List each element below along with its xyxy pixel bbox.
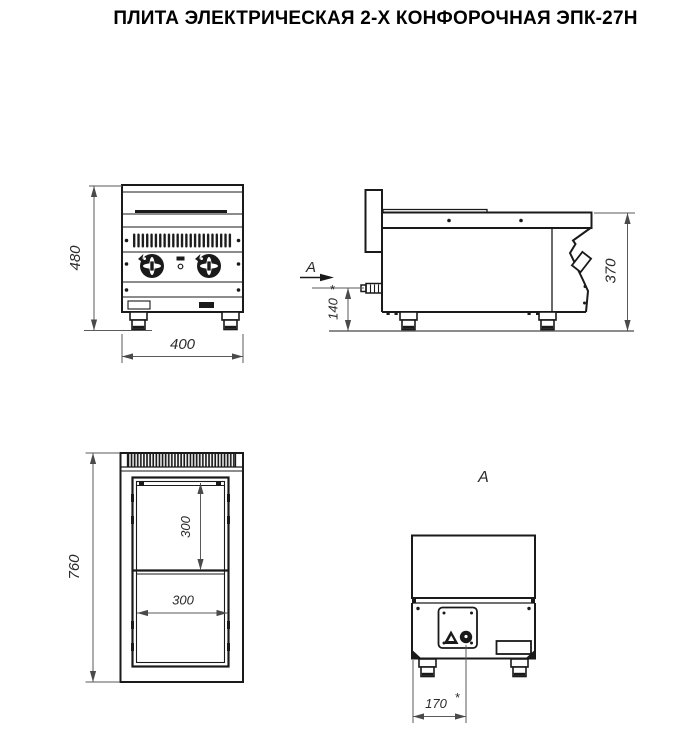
cord-offset-note: * [454, 690, 460, 705]
front-foot-right [222, 312, 239, 330]
hob-opening-inner [137, 482, 225, 663]
front-height-dim: 480 [67, 245, 84, 271]
hob-opening-outer [133, 478, 229, 667]
rear-view-title: А [477, 469, 489, 486]
cord-height-note: * [329, 282, 335, 297]
burner-width-dim: 300 [172, 593, 194, 608]
side-dimensions: А 140 * 370 [300, 213, 635, 331]
plan-view [121, 453, 244, 682]
front-body [122, 185, 243, 312]
base-vent-slot [128, 301, 150, 309]
side-view [329, 190, 634, 331]
cable-gland [361, 284, 382, 294]
technical-drawing: 480 400 [0, 0, 681, 736]
plan-grille [128, 454, 236, 467]
base-label [199, 302, 214, 308]
ventilation-grille [132, 233, 232, 248]
burner-depth-dim: 300 [178, 515, 193, 537]
front-foot-left [130, 312, 147, 330]
plan-dimensions: 760 300 300 [66, 453, 228, 682]
rear-foot-left [419, 659, 436, 677]
side-foot-right [539, 312, 556, 330]
burner-knob-right [195, 254, 221, 278]
rear-lower-panel [412, 603, 535, 659]
rear-upper-panel [412, 536, 535, 599]
worktop [382, 213, 592, 229]
front-width-dim: 400 [170, 336, 196, 353]
drawing-page: ПЛИТА ЭЛЕКТРИЧЕСКАЯ 2-Х КОНФОРОЧНАЯ ЭПК-… [0, 0, 681, 736]
rear-foot-right [511, 659, 528, 677]
side-knob [572, 252, 591, 272]
connection-box [439, 608, 478, 649]
cord-height-dim: 140 [326, 297, 341, 319]
cord-offset-dim: 170 [425, 696, 447, 711]
nameplate [497, 641, 532, 654]
hob-front-edge [135, 210, 227, 213]
view-arrow-label: А [305, 259, 316, 276]
rear-upstand [366, 190, 383, 252]
side-foot-left [400, 312, 417, 330]
rear-dimensions: 170 * [413, 645, 466, 723]
front-view [122, 185, 243, 330]
burner-knob-left [138, 254, 164, 278]
plan-depth-dim: 760 [66, 554, 83, 580]
rear-view: А [412, 469, 535, 677]
side-height-dim: 370 [603, 258, 620, 284]
indicator-light [177, 257, 185, 269]
